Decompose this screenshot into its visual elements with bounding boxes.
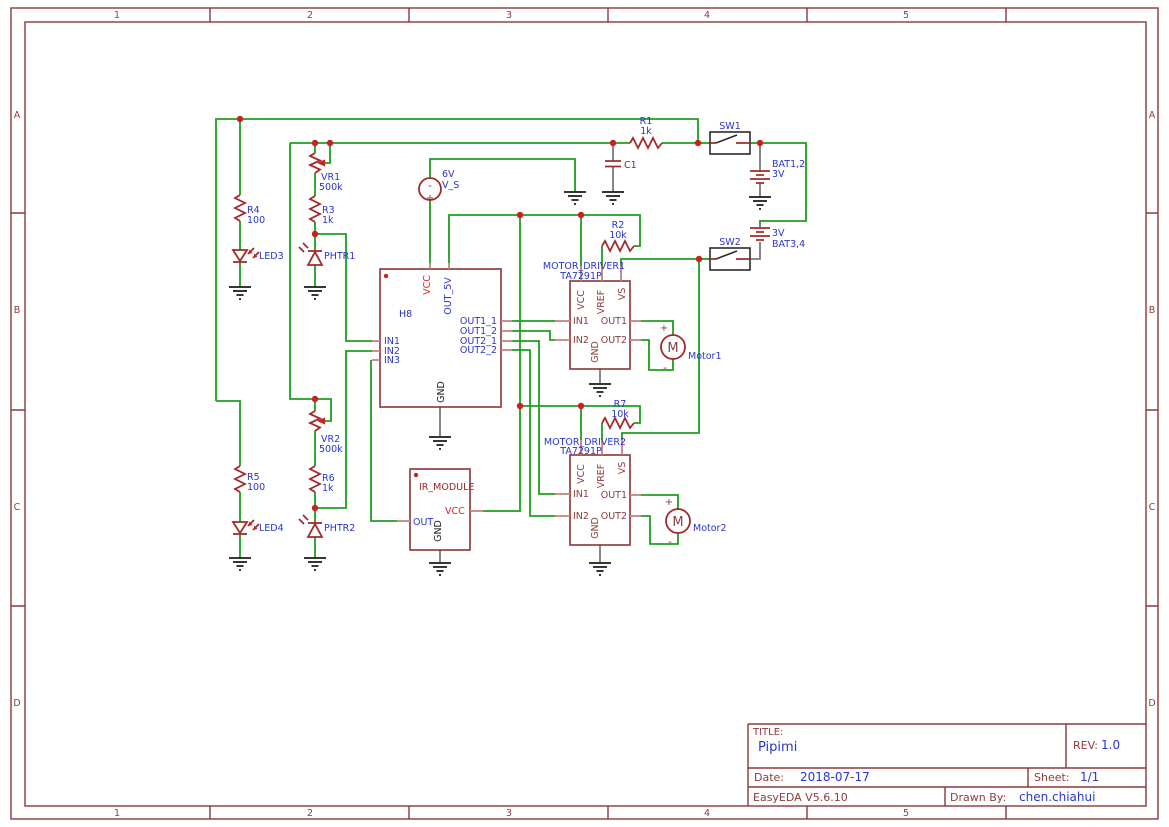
switch-sw1[interactable]: SW1: [710, 121, 750, 154]
driver1-pin-gnd: GND: [590, 341, 601, 363]
phototransistor-phtr2[interactable]: PHTR2: [299, 515, 355, 537]
driver1-pin-in2: IN2: [573, 335, 589, 346]
resistor-r6[interactable]: R6 1k: [310, 466, 335, 494]
schematic-sheet[interactable]: 1 2 3 4 5 1 2 3 4 5 A B C D A B C D: [0, 0, 1169, 827]
sheet-label: Sheet:: [1034, 771, 1070, 784]
motor2-plus: +: [665, 497, 673, 508]
frame-row-label-right: D: [1148, 698, 1155, 709]
ground-icon: [749, 197, 771, 209]
ground-icon: [589, 384, 611, 396]
sheet-frame: 1 2 3 4 5 1 2 3 4 5 A B C D A B C D: [11, 8, 1158, 819]
frame-col-label-bottom: 2: [307, 808, 313, 819]
r1-value: 1k: [640, 126, 652, 137]
drawn-by-value: chen.chiahui: [1019, 790, 1095, 804]
ir-pin-out: OUT: [413, 517, 433, 528]
frame-inner-border: [25, 22, 1146, 806]
r5-value: 100: [247, 482, 265, 493]
ic-motor-driver2[interactable]: MOTOR_DRIVER2 TA7291P VCC VREF VS IN1 IN…: [544, 437, 641, 545]
motor1-letter: M: [667, 341, 678, 356]
battery-bat34[interactable]: 3V BAT3,4: [750, 228, 805, 250]
frame-row-label: B: [14, 305, 21, 316]
h8-pin-in3: IN3: [384, 355, 400, 366]
sw2-ref: SW2: [719, 237, 740, 248]
phtr2-ref: PHTR2: [324, 523, 355, 534]
ground-icon: [564, 192, 586, 204]
title-label: TITLE:: [752, 727, 783, 738]
motor1-ref: Motor1: [688, 351, 722, 362]
h8-pin-vcc: VCC: [422, 275, 433, 295]
motor2-letter: M: [672, 515, 683, 530]
led-led3[interactable]: LED3: [233, 248, 284, 262]
rev-label: REV:: [1073, 739, 1098, 752]
title-value: Pipimi: [758, 740, 797, 755]
r7-value: 10k: [611, 409, 629, 420]
wire-r5-feed: [216, 401, 240, 466]
ir-pin-vcc: VCC: [445, 506, 465, 517]
sheet-value: 1/1: [1080, 770, 1099, 784]
frame-row-label-right: B: [1149, 305, 1156, 316]
ground-icon: [304, 558, 326, 570]
frame-col-label: 2: [307, 10, 313, 21]
frame-col-label: 5: [903, 10, 909, 21]
ic-h8[interactable]: H8 VCC OUT_5V IN1 IN2 IN3 OUT1_1 OUT1_2 …: [372, 263, 512, 407]
motor-motor2[interactable]: M + - Motor2: [665, 497, 727, 548]
motor1-plus: +: [660, 323, 668, 334]
driver2-part: TA7291P: [559, 446, 602, 457]
driver2-pin-vref: VREF: [596, 464, 607, 489]
driver1-pin-vref: VREF: [596, 290, 607, 315]
frame-col-label: 3: [506, 10, 512, 21]
drawn-by-label: Drawn By:: [950, 791, 1006, 804]
wire-out1-2: [512, 331, 555, 340]
ir-ref: IR_MODULE: [419, 482, 474, 493]
frame-col-label-bottom: 4: [704, 808, 710, 819]
vs-plus-sign: +: [426, 193, 434, 204]
rev-value: 1.0: [1101, 738, 1120, 752]
c1-ref: C1: [624, 160, 637, 171]
wire-vs-driver1: [621, 259, 699, 266]
h8-pin1-dot: [384, 274, 388, 278]
frame-row-label-right: C: [1149, 502, 1156, 513]
sw1-ref: SW1: [719, 121, 740, 132]
resistor-r3[interactable]: R3 1k: [310, 196, 335, 226]
vs-ref: V_S: [442, 180, 459, 191]
driver2-pin-in2: IN2: [573, 511, 589, 522]
bat12-value: 3V: [772, 169, 785, 180]
frame-col-label-bottom: 3: [506, 808, 512, 819]
voltage-source-vs[interactable]: - + 6V V_S: [419, 169, 459, 204]
motor-motor1[interactable]: M + - Motor1: [660, 323, 722, 374]
frame-row-label: C: [14, 502, 21, 513]
driver2-pin-in1: IN1: [573, 489, 589, 500]
battery-bat12[interactable]: BAT1,2 3V: [750, 159, 805, 183]
h8-pin-gnd: GND: [436, 381, 447, 403]
ir-pin1-dot: [414, 473, 418, 477]
frame-col-label: 1: [114, 10, 120, 21]
frame-col-label-bottom: 5: [903, 808, 909, 819]
resistor-r1[interactable]: R1 1k: [630, 116, 662, 148]
motor1-minus: -: [663, 361, 667, 374]
title-block: TITLE: Pipimi REV: 1.0 Date: 2018-07-17 …: [748, 724, 1146, 806]
frame-outer-border: [11, 8, 1158, 819]
ground-icon: [429, 563, 451, 575]
vr2-value: 500k: [319, 444, 343, 455]
ground-icon: [602, 192, 624, 204]
frame-col-label-bottom: 1: [114, 808, 120, 819]
schematic-canvas[interactable]: 1 2 3 4 5 1 2 3 4 5 A B C D A B C D: [0, 0, 1169, 827]
r6-value: 1k: [322, 483, 334, 494]
motor2-ref: Motor2: [693, 523, 727, 534]
date-label: Date:: [754, 771, 784, 784]
frame-col-label: 4: [704, 10, 710, 21]
vr1-value: 500k: [319, 182, 343, 193]
ground-icon: [229, 558, 251, 570]
driver2-pin-vs: VS: [617, 462, 628, 475]
vs-minus-sign: -: [428, 179, 432, 192]
resistor-r7[interactable]: R7 10k: [602, 399, 634, 428]
r2-value: 10k: [609, 230, 627, 241]
driver1-part: TA7291P: [559, 271, 602, 282]
ir-pin-gnd: GND: [433, 520, 444, 542]
capacitor-c1[interactable]: C1: [605, 160, 637, 171]
wire-in3-ir-out: [371, 360, 397, 521]
driver1-pin-in1: IN1: [573, 316, 589, 327]
frame-row-label: D: [13, 698, 20, 709]
frame-row-label-right: A: [1149, 110, 1156, 121]
ic-motor-driver1[interactable]: MOTOR_DRIVER1 TA7291P VCC VREF VS IN1 IN…: [543, 261, 641, 369]
ground-icon: [589, 563, 611, 575]
driver1-pin-out2: OUT2: [601, 335, 627, 346]
h8-ref: H8: [399, 309, 412, 320]
driver2-pin-out2: OUT2: [601, 511, 627, 522]
h8-pin-out2-2: OUT2_2: [460, 345, 497, 356]
frame-row-label: A: [14, 110, 21, 121]
wire-out2-2: [512, 350, 555, 516]
date-value: 2018-07-17: [800, 770, 870, 784]
ic-ir-module[interactable]: IR_MODULE OUT VCC GND: [397, 469, 483, 550]
resistor-r2[interactable]: R2 10k: [602, 220, 634, 251]
h8-pin-out5v: OUT_5V: [443, 277, 454, 315]
bat34-ref: BAT3,4: [772, 239, 805, 250]
phtr1-ref: PHTR1: [324, 251, 355, 262]
tool-version: EasyEDA V5.6.10: [753, 791, 848, 804]
driver1-pin-out1: OUT1: [601, 316, 627, 327]
r3-value: 1k: [322, 215, 334, 226]
driver2-pin-out1: OUT1: [601, 490, 627, 501]
driver2-pin-gnd: GND: [590, 517, 601, 539]
driver1-pin-vcc: VCC: [576, 290, 587, 310]
ground-icon: [429, 437, 451, 449]
switch-sw2[interactable]: SW2: [710, 237, 750, 270]
wires: [216, 119, 806, 558]
r4-value: 100: [247, 215, 265, 226]
driver2-pin-vcc: VCC: [576, 464, 587, 484]
bat34-value: 3V: [772, 228, 785, 239]
ground-icon: [229, 287, 251, 299]
resistor-r4[interactable]: R4 100: [235, 195, 265, 226]
led3-ref: LED3: [259, 251, 284, 262]
resistor-r5[interactable]: R5 100: [235, 466, 265, 493]
led-led4[interactable]: LED4: [233, 520, 284, 534]
wire-out2-1: [512, 341, 555, 494]
driver1-pin-vs: VS: [617, 288, 628, 301]
frame-ticks: [11, 8, 1158, 819]
vs-value: 6V: [442, 169, 455, 180]
ground-icon: [304, 287, 326, 299]
led4-ref: LED4: [259, 523, 284, 534]
motor2-minus: -: [668, 535, 672, 548]
